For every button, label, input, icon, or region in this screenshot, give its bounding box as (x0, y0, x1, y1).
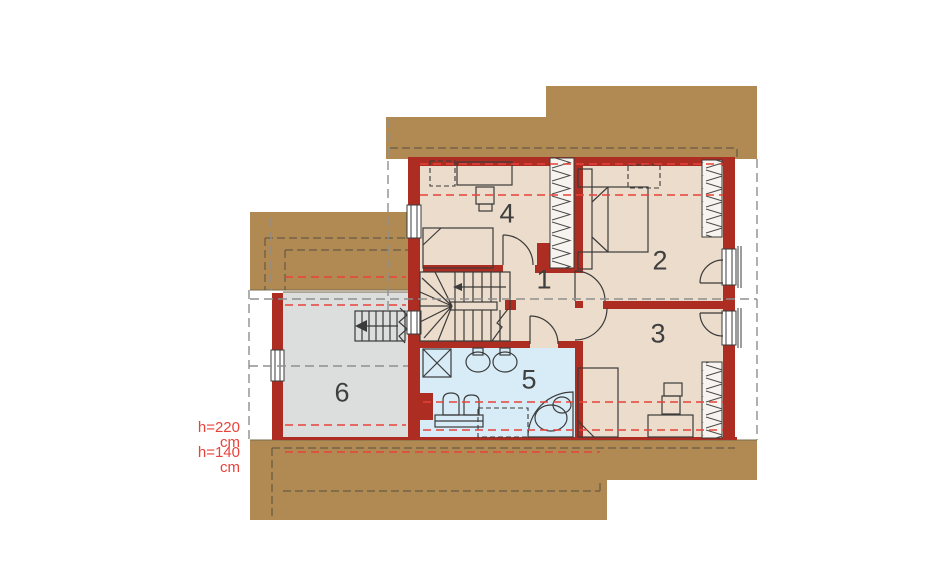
desk-room3 (648, 415, 693, 437)
room2-furniture (578, 165, 660, 269)
washbasin (493, 348, 517, 372)
door-room3 (575, 308, 607, 340)
floor-plan: 1 2 3 4 5 6 h=220 cm h=140 cm (0, 0, 940, 587)
door-room4 (503, 235, 533, 265)
wardrobe-hatch-room4 (550, 158, 574, 268)
room-label-6: 6 (334, 380, 349, 407)
room-label-4: 4 (499, 201, 514, 228)
wardrobe-hatch-room2 (702, 160, 722, 237)
room-label-5: 5 (521, 367, 536, 394)
window-room2-right (722, 246, 741, 288)
balcony-door-room3 (700, 313, 723, 336)
toilet-platform (435, 415, 483, 427)
double-bed-room2 (592, 187, 648, 252)
door-room2 (575, 271, 605, 301)
room-label-2: 2 (652, 248, 667, 275)
monitor-room3 (664, 383, 682, 396)
height-annotation-140: h=140 cm (174, 445, 240, 475)
room-label-1: 1 (536, 267, 551, 294)
wardrobe-hatch-room3 (702, 362, 722, 438)
door-bathroom (530, 316, 558, 344)
plan-linework (0, 0, 940, 587)
bed-room4 (423, 228, 493, 268)
dashed-outline (478, 408, 528, 437)
opening-room6 (407, 311, 421, 334)
stool-room4 (479, 204, 492, 211)
attic-ladder (355, 308, 407, 343)
shower (423, 349, 451, 377)
room-label-3: 3 (650, 321, 665, 348)
bidet (464, 395, 479, 415)
washbasin (466, 348, 490, 372)
roof-edges (250, 290, 757, 440)
section-line (249, 119, 757, 440)
window-room4-left (407, 205, 421, 238)
dashed-outline (628, 165, 660, 188)
staircase (420, 272, 510, 341)
chair-room3 (662, 396, 680, 414)
window-room3-right (722, 308, 741, 348)
bathroom-fixtures (423, 348, 573, 437)
toilet (443, 393, 459, 415)
balcony-door-room2 (700, 260, 723, 283)
